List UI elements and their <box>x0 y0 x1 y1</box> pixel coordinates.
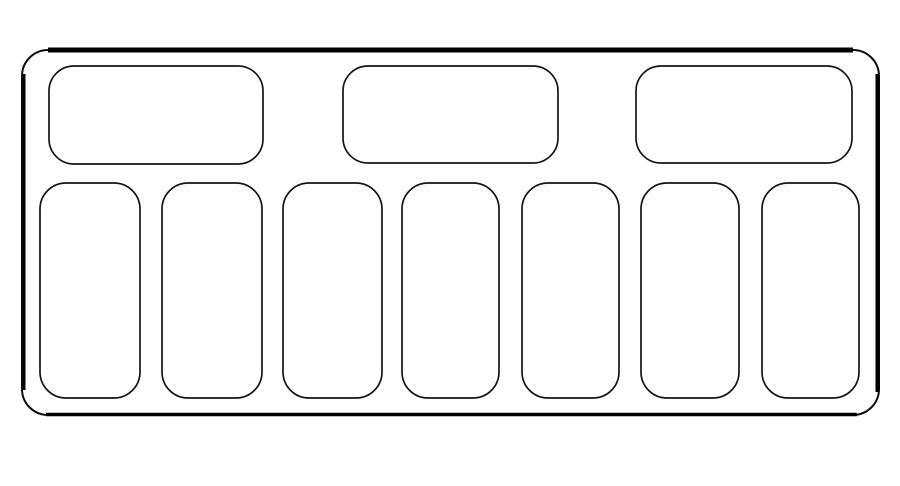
fuse-slot-1 <box>40 183 140 398</box>
fuse-slot-7 <box>762 183 859 398</box>
fuse-slot-3 <box>283 183 382 398</box>
relay-slot-1 <box>49 66 263 164</box>
fuse-box-diagram <box>0 0 900 486</box>
fuse-slot-2 <box>162 183 262 398</box>
fuse-slot-6 <box>641 183 739 398</box>
relay-slot-2 <box>343 66 558 163</box>
relay-slot-3 <box>636 66 852 163</box>
fuse-slot-4 <box>402 183 499 398</box>
fuse-slot-5 <box>522 183 619 398</box>
diagram-stage <box>0 0 900 486</box>
